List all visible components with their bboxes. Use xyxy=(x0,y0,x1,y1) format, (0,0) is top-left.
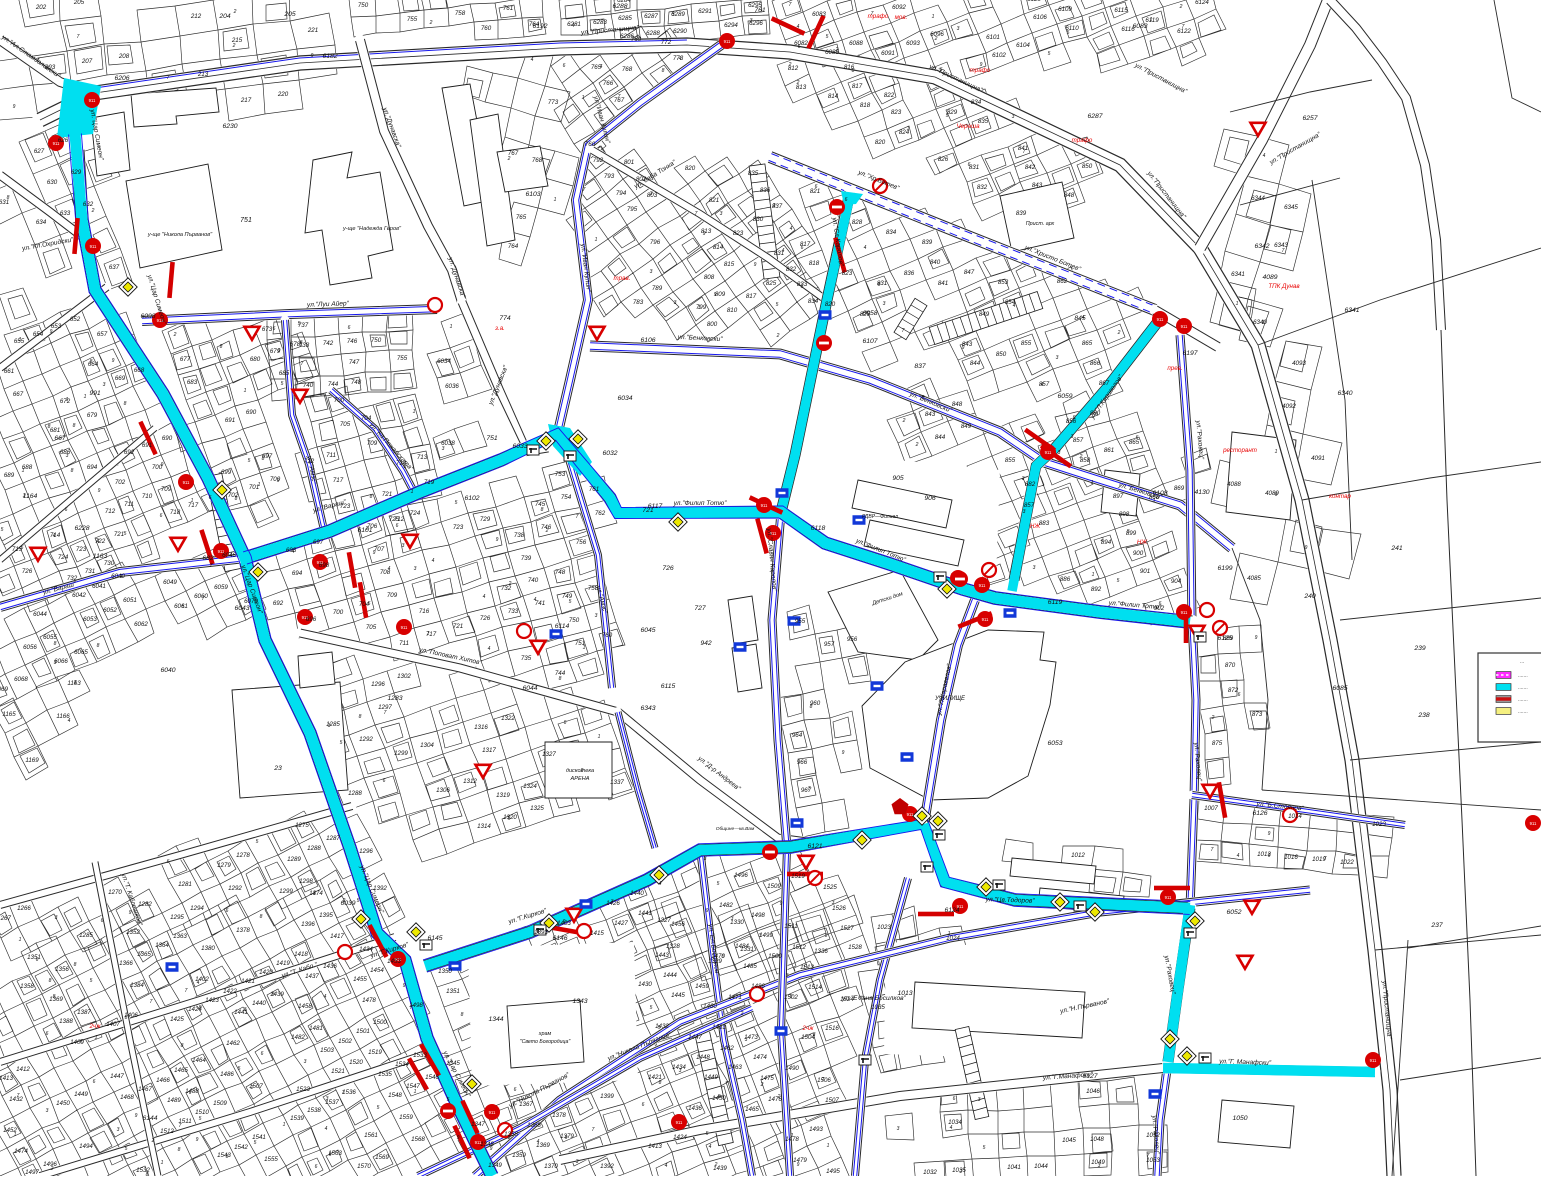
svg-text:1512: 1512 xyxy=(160,1128,174,1135)
svg-text:911: 911 xyxy=(979,583,986,588)
svg-text:3: 3 xyxy=(66,453,69,459)
svg-text:3: 3 xyxy=(46,1108,49,1114)
svg-text:9: 9 xyxy=(196,1137,199,1143)
svg-text:726: 726 xyxy=(662,565,674,572)
svg-text:1336: 1336 xyxy=(814,948,828,955)
svg-text:712: 712 xyxy=(394,516,405,523)
svg-text:6230: 6230 xyxy=(222,123,237,130)
svg-text:905: 905 xyxy=(892,475,904,482)
svg-text:6340: 6340 xyxy=(1253,319,1267,326)
svg-text:6085: 6085 xyxy=(1332,685,1347,692)
svg-text:1: 1 xyxy=(66,397,69,403)
svg-text:6070: 6070 xyxy=(244,598,258,605)
svg-text:8: 8 xyxy=(124,401,127,407)
svg-text:8: 8 xyxy=(662,68,665,74)
svg-text:8: 8 xyxy=(300,340,303,346)
svg-text:2: 2 xyxy=(796,80,800,86)
svg-text:1: 1 xyxy=(948,931,951,937)
svg-text:1465: 1465 xyxy=(745,1106,759,1113)
svg-text:6: 6 xyxy=(815,184,818,190)
svg-text:847: 847 xyxy=(964,269,975,276)
svg-text:1413: 1413 xyxy=(648,1143,662,1150)
svg-text:8: 8 xyxy=(146,1172,149,1176)
svg-text:1007: 1007 xyxy=(1204,805,1218,812)
svg-text:2: 2 xyxy=(915,442,919,448)
svg-text:трафо: трафо xyxy=(970,67,991,74)
svg-text:6: 6 xyxy=(209,495,212,501)
svg-text:1519: 1519 xyxy=(791,873,805,880)
svg-text:4: 4 xyxy=(790,226,793,232)
svg-text:6104: 6104 xyxy=(1016,42,1030,49)
svg-text:АРЕНА: АРЕНА xyxy=(570,776,590,782)
svg-text:1: 1 xyxy=(803,965,806,971)
svg-text:1165: 1165 xyxy=(2,711,16,718)
svg-text:843: 843 xyxy=(1032,182,1043,189)
svg-text:844: 844 xyxy=(935,434,946,441)
svg-text:1413: 1413 xyxy=(0,1075,13,1082)
svg-text:694: 694 xyxy=(87,464,98,471)
svg-text:869: 869 xyxy=(1223,635,1234,642)
svg-text:6: 6 xyxy=(1275,492,1278,498)
svg-text:1474: 1474 xyxy=(753,1054,767,1061)
svg-text:7: 7 xyxy=(342,1090,345,1096)
svg-text:3: 3 xyxy=(957,26,960,32)
svg-text:1500: 1500 xyxy=(768,953,782,960)
svg-text:657: 657 xyxy=(97,331,108,338)
svg-text:760: 760 xyxy=(585,141,596,148)
svg-text:1546: 1546 xyxy=(425,1074,439,1081)
svg-text:5: 5 xyxy=(569,599,572,605)
svg-text:6126: 6126 xyxy=(1252,810,1267,817)
svg-text:6: 6 xyxy=(953,1096,956,1102)
svg-text:6088: 6088 xyxy=(849,40,863,47)
svg-text:8: 8 xyxy=(262,456,265,462)
svg-text:3: 3 xyxy=(773,203,776,209)
svg-text:3: 3 xyxy=(832,900,835,906)
svg-text:6: 6 xyxy=(93,1079,96,1085)
svg-text:3: 3 xyxy=(883,301,886,307)
svg-text:5: 5 xyxy=(447,1097,450,1103)
svg-text:810: 810 xyxy=(727,307,738,314)
svg-text:6082: 6082 xyxy=(794,40,808,47)
svg-text:3: 3 xyxy=(326,1096,329,1102)
svg-text:6106: 6106 xyxy=(640,337,655,344)
svg-text:7: 7 xyxy=(384,710,387,716)
svg-text:991: 991 xyxy=(89,390,101,397)
svg-text:1454: 1454 xyxy=(370,967,384,974)
svg-text:4: 4 xyxy=(324,994,327,1000)
svg-text:822: 822 xyxy=(884,92,895,99)
svg-text:904: 904 xyxy=(1171,578,1182,585)
svg-text:1: 1 xyxy=(598,734,601,740)
svg-text:9: 9 xyxy=(98,488,101,494)
svg-text:911: 911 xyxy=(489,1110,496,1115)
svg-text:5: 5 xyxy=(801,284,804,290)
svg-text:2: 2 xyxy=(777,1094,781,1100)
svg-text:6: 6 xyxy=(1238,692,1241,698)
svg-text:1041: 1041 xyxy=(1007,1164,1021,1171)
svg-text:726: 726 xyxy=(480,615,491,622)
svg-text:6083: 6083 xyxy=(1132,23,1147,30)
svg-text:700: 700 xyxy=(333,609,344,616)
svg-text:6032: 6032 xyxy=(602,450,617,457)
svg-text:814: 814 xyxy=(828,93,839,100)
svg-text:1: 1 xyxy=(283,1122,286,1128)
svg-text:5: 5 xyxy=(238,1066,241,1072)
svg-text:796: 796 xyxy=(650,239,661,246)
svg-text:756: 756 xyxy=(576,539,587,546)
svg-text:911: 911 xyxy=(1045,450,1052,455)
svg-text:9: 9 xyxy=(457,1135,460,1141)
svg-text:1507: 1507 xyxy=(825,1097,839,1104)
svg-text:6288: 6288 xyxy=(646,30,660,37)
svg-text:764: 764 xyxy=(529,21,540,28)
svg-text:747: 747 xyxy=(349,359,360,366)
svg-text:6: 6 xyxy=(189,1090,192,1096)
svg-text:1048: 1048 xyxy=(1090,1136,1104,1143)
svg-text:7: 7 xyxy=(185,988,188,994)
svg-text:761: 761 xyxy=(503,5,513,12)
svg-text:1395: 1395 xyxy=(319,912,333,919)
svg-text:1489: 1489 xyxy=(167,1097,181,1104)
svg-text:1482: 1482 xyxy=(291,1034,305,1041)
svg-text:6: 6 xyxy=(383,778,386,784)
svg-text:238: 238 xyxy=(1417,712,1430,719)
svg-text:6036: 6036 xyxy=(445,383,459,390)
svg-text:217: 217 xyxy=(240,97,252,104)
svg-text:1509: 1509 xyxy=(767,883,781,890)
svg-text:1319: 1319 xyxy=(496,792,510,799)
svg-text:1: 1 xyxy=(1150,17,1153,23)
svg-text:3: 3 xyxy=(897,1126,900,1132)
svg-text:1: 1 xyxy=(1091,480,1094,486)
svg-text:1542: 1542 xyxy=(234,1144,248,1151)
svg-text:702: 702 xyxy=(115,479,126,486)
svg-text:6119: 6119 xyxy=(1048,599,1063,606)
svg-text:6091: 6091 xyxy=(881,50,895,57)
svg-text:РДВР—Филиал: РДВР—Филиал xyxy=(862,514,898,520)
svg-text:9: 9 xyxy=(135,1113,138,1119)
svg-text:758: 758 xyxy=(455,10,466,17)
svg-text:1343: 1343 xyxy=(572,998,587,1005)
svg-text:1032: 1032 xyxy=(923,1169,937,1176)
svg-text:1013: 1013 xyxy=(897,990,912,997)
svg-text:1: 1 xyxy=(161,1160,164,1166)
svg-text:691: 691 xyxy=(225,417,235,424)
svg-text:2: 2 xyxy=(1100,537,1104,543)
svg-text:689: 689 xyxy=(4,472,15,479)
svg-text:873: 873 xyxy=(1252,711,1263,718)
svg-text:1430: 1430 xyxy=(638,981,652,988)
svg-text:7: 7 xyxy=(668,948,671,954)
svg-text:766: 766 xyxy=(603,80,614,87)
svg-text:911: 911 xyxy=(1157,317,1164,322)
svg-text:711: 711 xyxy=(326,452,336,459)
svg-text:848: 848 xyxy=(952,401,963,408)
svg-text:203: 203 xyxy=(44,64,56,71)
svg-text:трафо: трафо xyxy=(1072,137,1093,144)
svg-text:8: 8 xyxy=(48,424,51,430)
svg-text:8: 8 xyxy=(73,423,76,429)
svg-text:1528: 1528 xyxy=(848,944,862,951)
svg-text:630: 630 xyxy=(47,179,58,186)
svg-text:727: 727 xyxy=(694,605,706,612)
svg-text:830: 830 xyxy=(753,216,764,223)
svg-text:1: 1 xyxy=(19,337,22,343)
svg-text:835: 835 xyxy=(748,170,759,177)
svg-text:9: 9 xyxy=(496,537,499,543)
svg-text:6118: 6118 xyxy=(811,525,826,532)
svg-text:1282: 1282 xyxy=(138,901,152,908)
svg-text:237: 237 xyxy=(1430,922,1443,929)
svg-text:6116: 6116 xyxy=(1121,26,1135,33)
svg-text:732: 732 xyxy=(67,575,78,582)
svg-text:6101: 6101 xyxy=(986,34,1000,41)
svg-text:1488: 1488 xyxy=(185,1088,199,1095)
svg-text:4: 4 xyxy=(197,980,200,986)
svg-text:3: 3 xyxy=(813,1032,816,1038)
svg-text:865: 865 xyxy=(1082,340,1093,347)
svg-text:8: 8 xyxy=(790,994,793,1000)
svg-text:1445: 1445 xyxy=(671,992,685,999)
svg-text:754: 754 xyxy=(561,494,572,501)
svg-text:761: 761 xyxy=(589,486,599,493)
svg-text:6: 6 xyxy=(845,197,848,203)
svg-text:7: 7 xyxy=(576,514,579,520)
svg-text:1292: 1292 xyxy=(228,885,242,892)
svg-text:1: 1 xyxy=(827,1143,830,1149)
svg-text:1486: 1486 xyxy=(751,983,765,990)
svg-text:1: 1 xyxy=(258,482,261,488)
svg-text:729: 729 xyxy=(480,516,491,523)
svg-text:629: 629 xyxy=(71,169,82,176)
svg-text:7: 7 xyxy=(717,1024,720,1030)
svg-text:1278: 1278 xyxy=(236,852,250,859)
svg-text:4: 4 xyxy=(864,245,867,251)
svg-text:1366: 1366 xyxy=(119,960,133,967)
svg-text:1: 1 xyxy=(411,489,414,495)
svg-text:5: 5 xyxy=(340,740,343,746)
svg-text:1287: 1287 xyxy=(326,835,340,842)
svg-text:911: 911 xyxy=(1181,324,1188,329)
svg-text:1434: 1434 xyxy=(359,946,373,953)
svg-text:1: 1 xyxy=(595,237,598,243)
svg-text:835: 835 xyxy=(978,118,989,125)
svg-text:1: 1 xyxy=(1092,572,1095,578)
svg-text:6052: 6052 xyxy=(103,607,117,614)
svg-text:1474: 1474 xyxy=(14,1148,28,1155)
svg-text:738: 738 xyxy=(514,532,525,539)
svg-text:712: 712 xyxy=(304,458,315,465)
svg-text:1302: 1302 xyxy=(397,673,411,680)
svg-text:1363: 1363 xyxy=(173,933,187,940)
svg-text:1479: 1479 xyxy=(793,1157,807,1164)
svg-text:у-ще "Надежда Геров": у-ще "Надежда Геров" xyxy=(342,226,402,232)
svg-text:834: 834 xyxy=(808,298,819,305)
svg-text:3: 3 xyxy=(704,856,707,862)
svg-text:2: 2 xyxy=(740,1011,744,1017)
svg-text:892: 892 xyxy=(1091,586,1102,593)
svg-text:721: 721 xyxy=(382,491,392,498)
svg-text:1358: 1358 xyxy=(20,983,34,990)
svg-text:4: 4 xyxy=(665,1163,668,1169)
svg-text:911: 911 xyxy=(1165,895,1172,900)
svg-text:1266: 1266 xyxy=(17,905,31,912)
svg-text:213: 213 xyxy=(197,71,209,78)
svg-text:4: 4 xyxy=(325,1126,328,1132)
svg-text:8: 8 xyxy=(659,1080,662,1086)
svg-text:6040: 6040 xyxy=(111,573,125,580)
svg-text:6065: 6065 xyxy=(74,649,88,656)
svg-text:8: 8 xyxy=(260,914,263,920)
svg-text:855: 855 xyxy=(1005,457,1016,464)
svg-text:1163: 1163 xyxy=(93,553,108,560)
svg-text:2: 2 xyxy=(959,1169,963,1175)
svg-text:1: 1 xyxy=(191,498,194,504)
svg-text:5: 5 xyxy=(281,381,284,387)
svg-text:8: 8 xyxy=(181,1043,184,1049)
svg-text:8: 8 xyxy=(810,704,813,710)
svg-text:1481: 1481 xyxy=(309,1025,323,1032)
svg-text:1295: 1295 xyxy=(170,914,184,921)
svg-text:911: 911 xyxy=(907,812,914,817)
svg-text:3: 3 xyxy=(679,1068,682,1074)
svg-text:7: 7 xyxy=(210,563,213,569)
svg-text:8: 8 xyxy=(508,1135,511,1141)
svg-text:765: 765 xyxy=(516,214,527,221)
svg-text:1468: 1468 xyxy=(120,1094,134,1101)
svg-text:653: 653 xyxy=(51,323,62,330)
svg-text:6103: 6103 xyxy=(525,191,540,198)
svg-text:3: 3 xyxy=(55,915,58,921)
svg-text:1: 1 xyxy=(95,1035,98,1041)
svg-text:2: 2 xyxy=(1179,4,1183,10)
svg-text:2: 2 xyxy=(91,208,95,214)
svg-text:1: 1 xyxy=(583,645,586,651)
svg-text:1350: 1350 xyxy=(438,968,452,975)
svg-text:8: 8 xyxy=(220,344,223,350)
svg-text:1312: 1312 xyxy=(463,778,477,785)
svg-text:2: 2 xyxy=(835,47,839,53)
svg-text:7: 7 xyxy=(1211,847,1214,853)
svg-text:724: 724 xyxy=(58,554,69,561)
svg-text:1283: 1283 xyxy=(387,695,402,702)
svg-text:906: 906 xyxy=(924,495,936,502)
svg-text:667: 667 xyxy=(13,391,24,398)
svg-text:849: 849 xyxy=(979,311,990,318)
svg-text:1494: 1494 xyxy=(79,1143,93,1150)
svg-text:6049: 6049 xyxy=(163,579,177,586)
svg-text:1407: 1407 xyxy=(106,1021,120,1028)
svg-text:202: 202 xyxy=(35,4,47,11)
svg-text:6: 6 xyxy=(1073,415,1076,421)
svg-text:207: 207 xyxy=(81,58,93,65)
svg-text:681: 681 xyxy=(50,427,60,434)
svg-text:7: 7 xyxy=(202,596,205,602)
svg-text:1364: 1364 xyxy=(155,942,169,949)
svg-text:726: 726 xyxy=(22,568,33,575)
svg-text:723: 723 xyxy=(340,503,351,510)
svg-text:5: 5 xyxy=(1117,578,1120,584)
svg-text:690: 690 xyxy=(162,435,173,442)
svg-text:8: 8 xyxy=(461,1012,464,1018)
svg-text:3: 3 xyxy=(54,660,57,666)
svg-text:5: 5 xyxy=(776,302,779,308)
svg-text:748: 748 xyxy=(555,569,566,576)
svg-text:208: 208 xyxy=(118,53,130,60)
svg-text:898: 898 xyxy=(1119,511,1130,518)
svg-text:669: 669 xyxy=(115,375,126,382)
svg-text:6044: 6044 xyxy=(33,611,47,618)
svg-text:6069: 6069 xyxy=(0,686,8,693)
svg-text:849: 849 xyxy=(961,423,972,430)
svg-text:1455: 1455 xyxy=(353,976,367,983)
svg-text:828: 828 xyxy=(852,219,863,226)
svg-text:829: 829 xyxy=(947,109,958,116)
svg-text:1: 1 xyxy=(932,14,935,20)
svg-text:6: 6 xyxy=(315,1164,318,1170)
svg-text:1496: 1496 xyxy=(734,872,748,879)
svg-text:4: 4 xyxy=(534,597,537,603)
svg-text:9: 9 xyxy=(311,53,314,59)
svg-text:7: 7 xyxy=(410,1005,413,1011)
svg-text:6053: 6053 xyxy=(1047,740,1062,747)
svg-text:6: 6 xyxy=(101,918,104,924)
svg-text:8: 8 xyxy=(825,933,828,939)
svg-text:1374: 1374 xyxy=(309,890,323,897)
svg-text:1450: 1450 xyxy=(56,1100,70,1107)
svg-text:1384: 1384 xyxy=(130,982,144,989)
svg-text:793: 793 xyxy=(604,173,615,180)
svg-text:2: 2 xyxy=(776,333,780,339)
svg-text:1023: 1023 xyxy=(877,924,891,931)
svg-text:883: 883 xyxy=(1039,520,1050,527)
svg-text:1: 1 xyxy=(414,1089,417,1095)
svg-text:2: 2 xyxy=(151,1138,155,1144)
svg-text:6102: 6102 xyxy=(992,52,1006,59)
svg-text:740: 740 xyxy=(528,577,539,584)
svg-text:4: 4 xyxy=(1041,382,1044,388)
svg-text:8: 8 xyxy=(7,195,10,201)
svg-text:6: 6 xyxy=(226,908,229,914)
svg-text:5: 5 xyxy=(256,839,259,845)
svg-text:7: 7 xyxy=(140,951,143,957)
svg-text:1306: 1306 xyxy=(436,787,450,794)
svg-text:709: 709 xyxy=(161,486,172,493)
svg-text:8: 8 xyxy=(235,496,238,502)
svg-text:4: 4 xyxy=(600,64,603,70)
svg-text:8: 8 xyxy=(878,282,881,288)
svg-text:1559: 1559 xyxy=(399,1114,413,1121)
svg-text:1555: 1555 xyxy=(264,1156,278,1163)
svg-text:7: 7 xyxy=(808,786,811,792)
svg-text:731: 731 xyxy=(85,568,95,575)
svg-text:7: 7 xyxy=(1147,1153,1150,1159)
svg-text:6046: 6046 xyxy=(222,552,236,559)
svg-text:9: 9 xyxy=(278,348,281,354)
svg-text:3: 3 xyxy=(1058,450,1061,456)
svg-text:6291: 6291 xyxy=(698,8,712,15)
svg-text:5: 5 xyxy=(706,1131,709,1137)
svg-text:850: 850 xyxy=(1082,163,1093,170)
svg-text:"Свето Богородица": "Свето Богородица" xyxy=(520,1039,572,1045)
svg-text:6121: 6121 xyxy=(807,843,822,850)
svg-text:4: 4 xyxy=(950,1125,953,1131)
svg-text:1466: 1466 xyxy=(156,1077,170,1084)
svg-text:7: 7 xyxy=(822,1077,825,1083)
svg-text:...: ... xyxy=(1520,659,1524,665)
svg-text:709: 709 xyxy=(387,592,398,599)
